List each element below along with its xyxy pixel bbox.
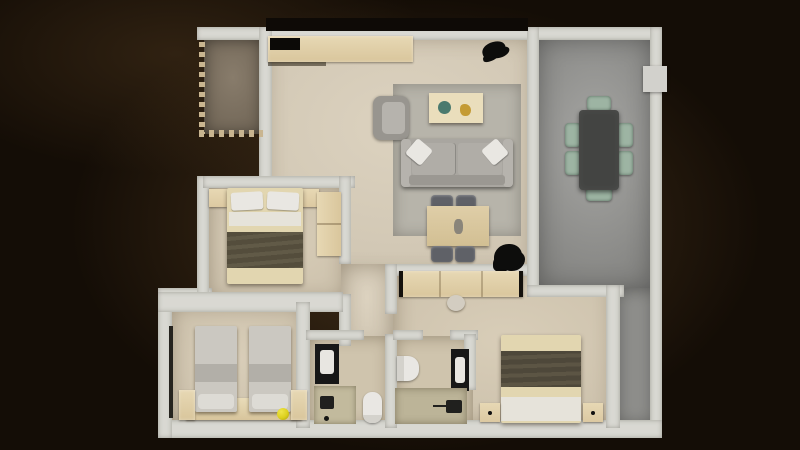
wall-master-right — [606, 285, 620, 428]
bed-dark-throw — [501, 351, 581, 387]
dining-chair — [617, 151, 633, 175]
sofa — [401, 139, 513, 187]
dining-table — [579, 110, 619, 190]
bed-pillow — [231, 191, 264, 211]
shower-center — [314, 386, 356, 424]
dining-chair — [587, 96, 611, 111]
balcony-railing-bottom — [199, 130, 263, 137]
gold-decor-icon — [460, 104, 471, 116]
twin-bed — [195, 326, 237, 412]
vanity-center — [315, 344, 339, 384]
vanity-ensuite — [451, 349, 469, 391]
sink — [455, 357, 465, 383]
shower-drain-icon — [324, 416, 329, 421]
console-open-shelf — [270, 38, 300, 50]
wall-terrace-left — [527, 27, 539, 295]
wall-bath-ensuite-top-a — [393, 330, 423, 340]
dining-chair — [617, 123, 633, 147]
balcony-railing-left — [199, 42, 205, 134]
nightstand — [480, 403, 500, 422]
wardrobe-divider — [481, 271, 483, 297]
wardrobe-end — [519, 271, 523, 297]
wardrobe-left-room — [317, 192, 341, 256]
window-band-dark — [266, 18, 528, 31]
nightstand — [583, 403, 603, 422]
wall-bath-center-top — [306, 330, 364, 340]
master-wardrobe — [399, 271, 523, 297]
wardrobe-divider — [317, 223, 341, 225]
toilet-ensuite — [397, 356, 419, 381]
shower-arm-icon — [433, 405, 447, 407]
twin-bed-band — [195, 364, 237, 382]
slider-track — [169, 326, 173, 418]
wall-left-upper — [197, 176, 209, 304]
bed-sheet — [501, 397, 581, 421]
balcony-floor — [204, 40, 262, 134]
console-sideboard — [268, 36, 413, 62]
headboard-side — [291, 390, 307, 420]
toilet-center — [363, 392, 382, 423]
wall-corridor-right — [385, 264, 397, 314]
sofa-backrest — [409, 175, 505, 185]
ac-unit — [643, 66, 667, 92]
wardrobe-divider — [439, 271, 441, 297]
desk-chair — [455, 246, 475, 262]
twin-bed — [249, 326, 291, 412]
desk — [427, 206, 489, 246]
wall-mid-band — [158, 292, 343, 312]
yellow-ball — [277, 408, 289, 420]
twin-bed-pillow — [252, 394, 288, 409]
bed-pillow — [267, 191, 300, 211]
nightstand-knob — [591, 411, 595, 415]
armchair-seat — [382, 102, 405, 134]
shower-ensuite — [395, 388, 467, 424]
bed-dark-throw — [227, 232, 303, 268]
wardrobe-end — [399, 271, 403, 297]
master-bed — [501, 335, 581, 423]
shower-fixture-icon — [320, 396, 334, 409]
double-bed-left — [227, 188, 303, 284]
teal-bowl-icon — [438, 101, 451, 114]
nightstand — [209, 189, 227, 207]
bed-sheet-band — [229, 212, 301, 226]
shower-fixture-icon — [446, 400, 462, 413]
coffee-table — [429, 93, 483, 123]
floorplan-render-viewport[interactable] — [0, 0, 800, 450]
nightstand-knob — [488, 411, 492, 415]
twin-bed-band — [249, 364, 291, 382]
armchair — [373, 96, 409, 140]
desk-chair — [431, 246, 453, 262]
headboard-side — [179, 390, 195, 420]
twin-bed-pillow — [198, 394, 234, 409]
toilet-tank — [397, 356, 404, 381]
wall-bedroom-left-top — [203, 176, 355, 188]
pouf — [447, 295, 465, 311]
console-shadow — [268, 62, 326, 66]
desk-decor — [454, 219, 463, 234]
sink — [320, 350, 334, 374]
